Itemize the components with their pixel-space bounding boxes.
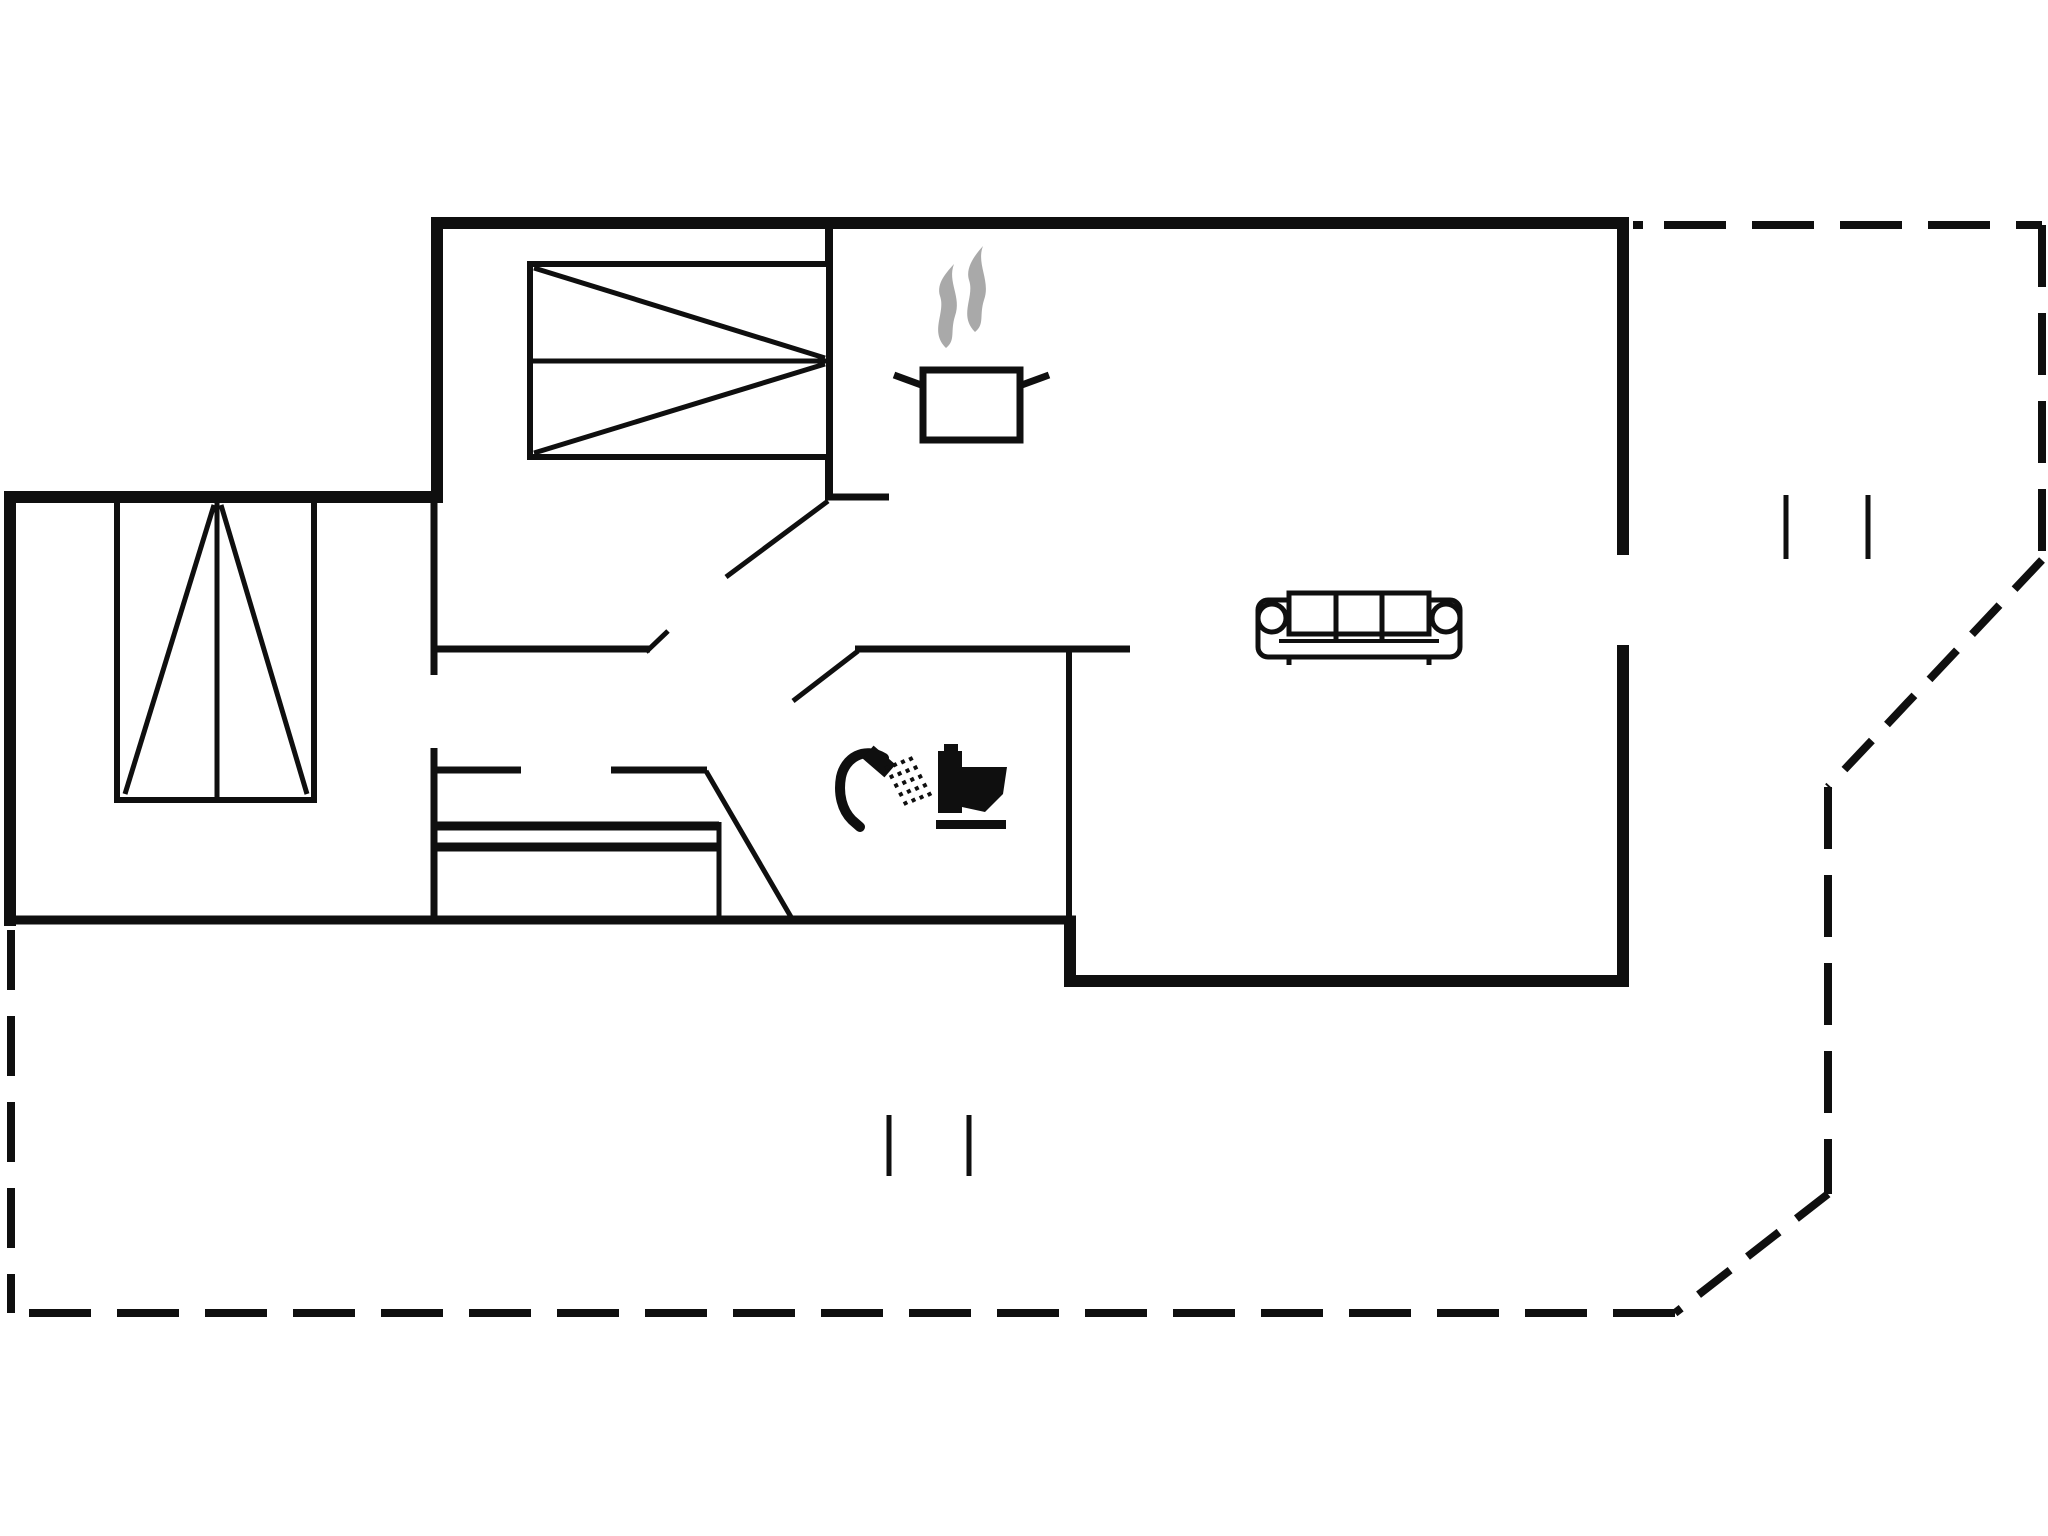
wardrobe-icon	[117, 500, 314, 800]
sofa-icon	[1258, 593, 1460, 665]
sofa-icon-part	[1258, 604, 1286, 632]
toilet-icon-part	[936, 820, 1006, 829]
sofa-icon-part	[1432, 604, 1460, 632]
cooking-pot-icon-part	[923, 370, 1020, 440]
steam-icon-part	[967, 246, 986, 332]
wall-segment	[646, 631, 668, 652]
cooking-pot-icon	[894, 370, 1049, 440]
sofa-icon-part	[1289, 593, 1429, 634]
door-swing	[793, 651, 858, 701]
steam-icon-part	[938, 264, 957, 348]
shower-icon-part	[886, 766, 908, 808]
floor-plan-page	[0, 0, 2048, 1536]
doormat	[434, 822, 719, 918]
toilet-icon-part	[944, 744, 958, 752]
toilet-icon	[936, 744, 1007, 829]
toilet-icon-part	[938, 751, 962, 813]
terrace-outline-segment	[1828, 560, 2042, 787]
floor-plan	[0, 0, 2048, 1536]
steam-icon	[938, 246, 986, 348]
double-bed-icon	[530, 264, 829, 457]
toilet-icon-part	[962, 767, 1007, 812]
door-swing	[726, 501, 828, 577]
terrace-outline-segment	[1675, 1194, 1828, 1313]
shower-icon	[840, 752, 932, 827]
